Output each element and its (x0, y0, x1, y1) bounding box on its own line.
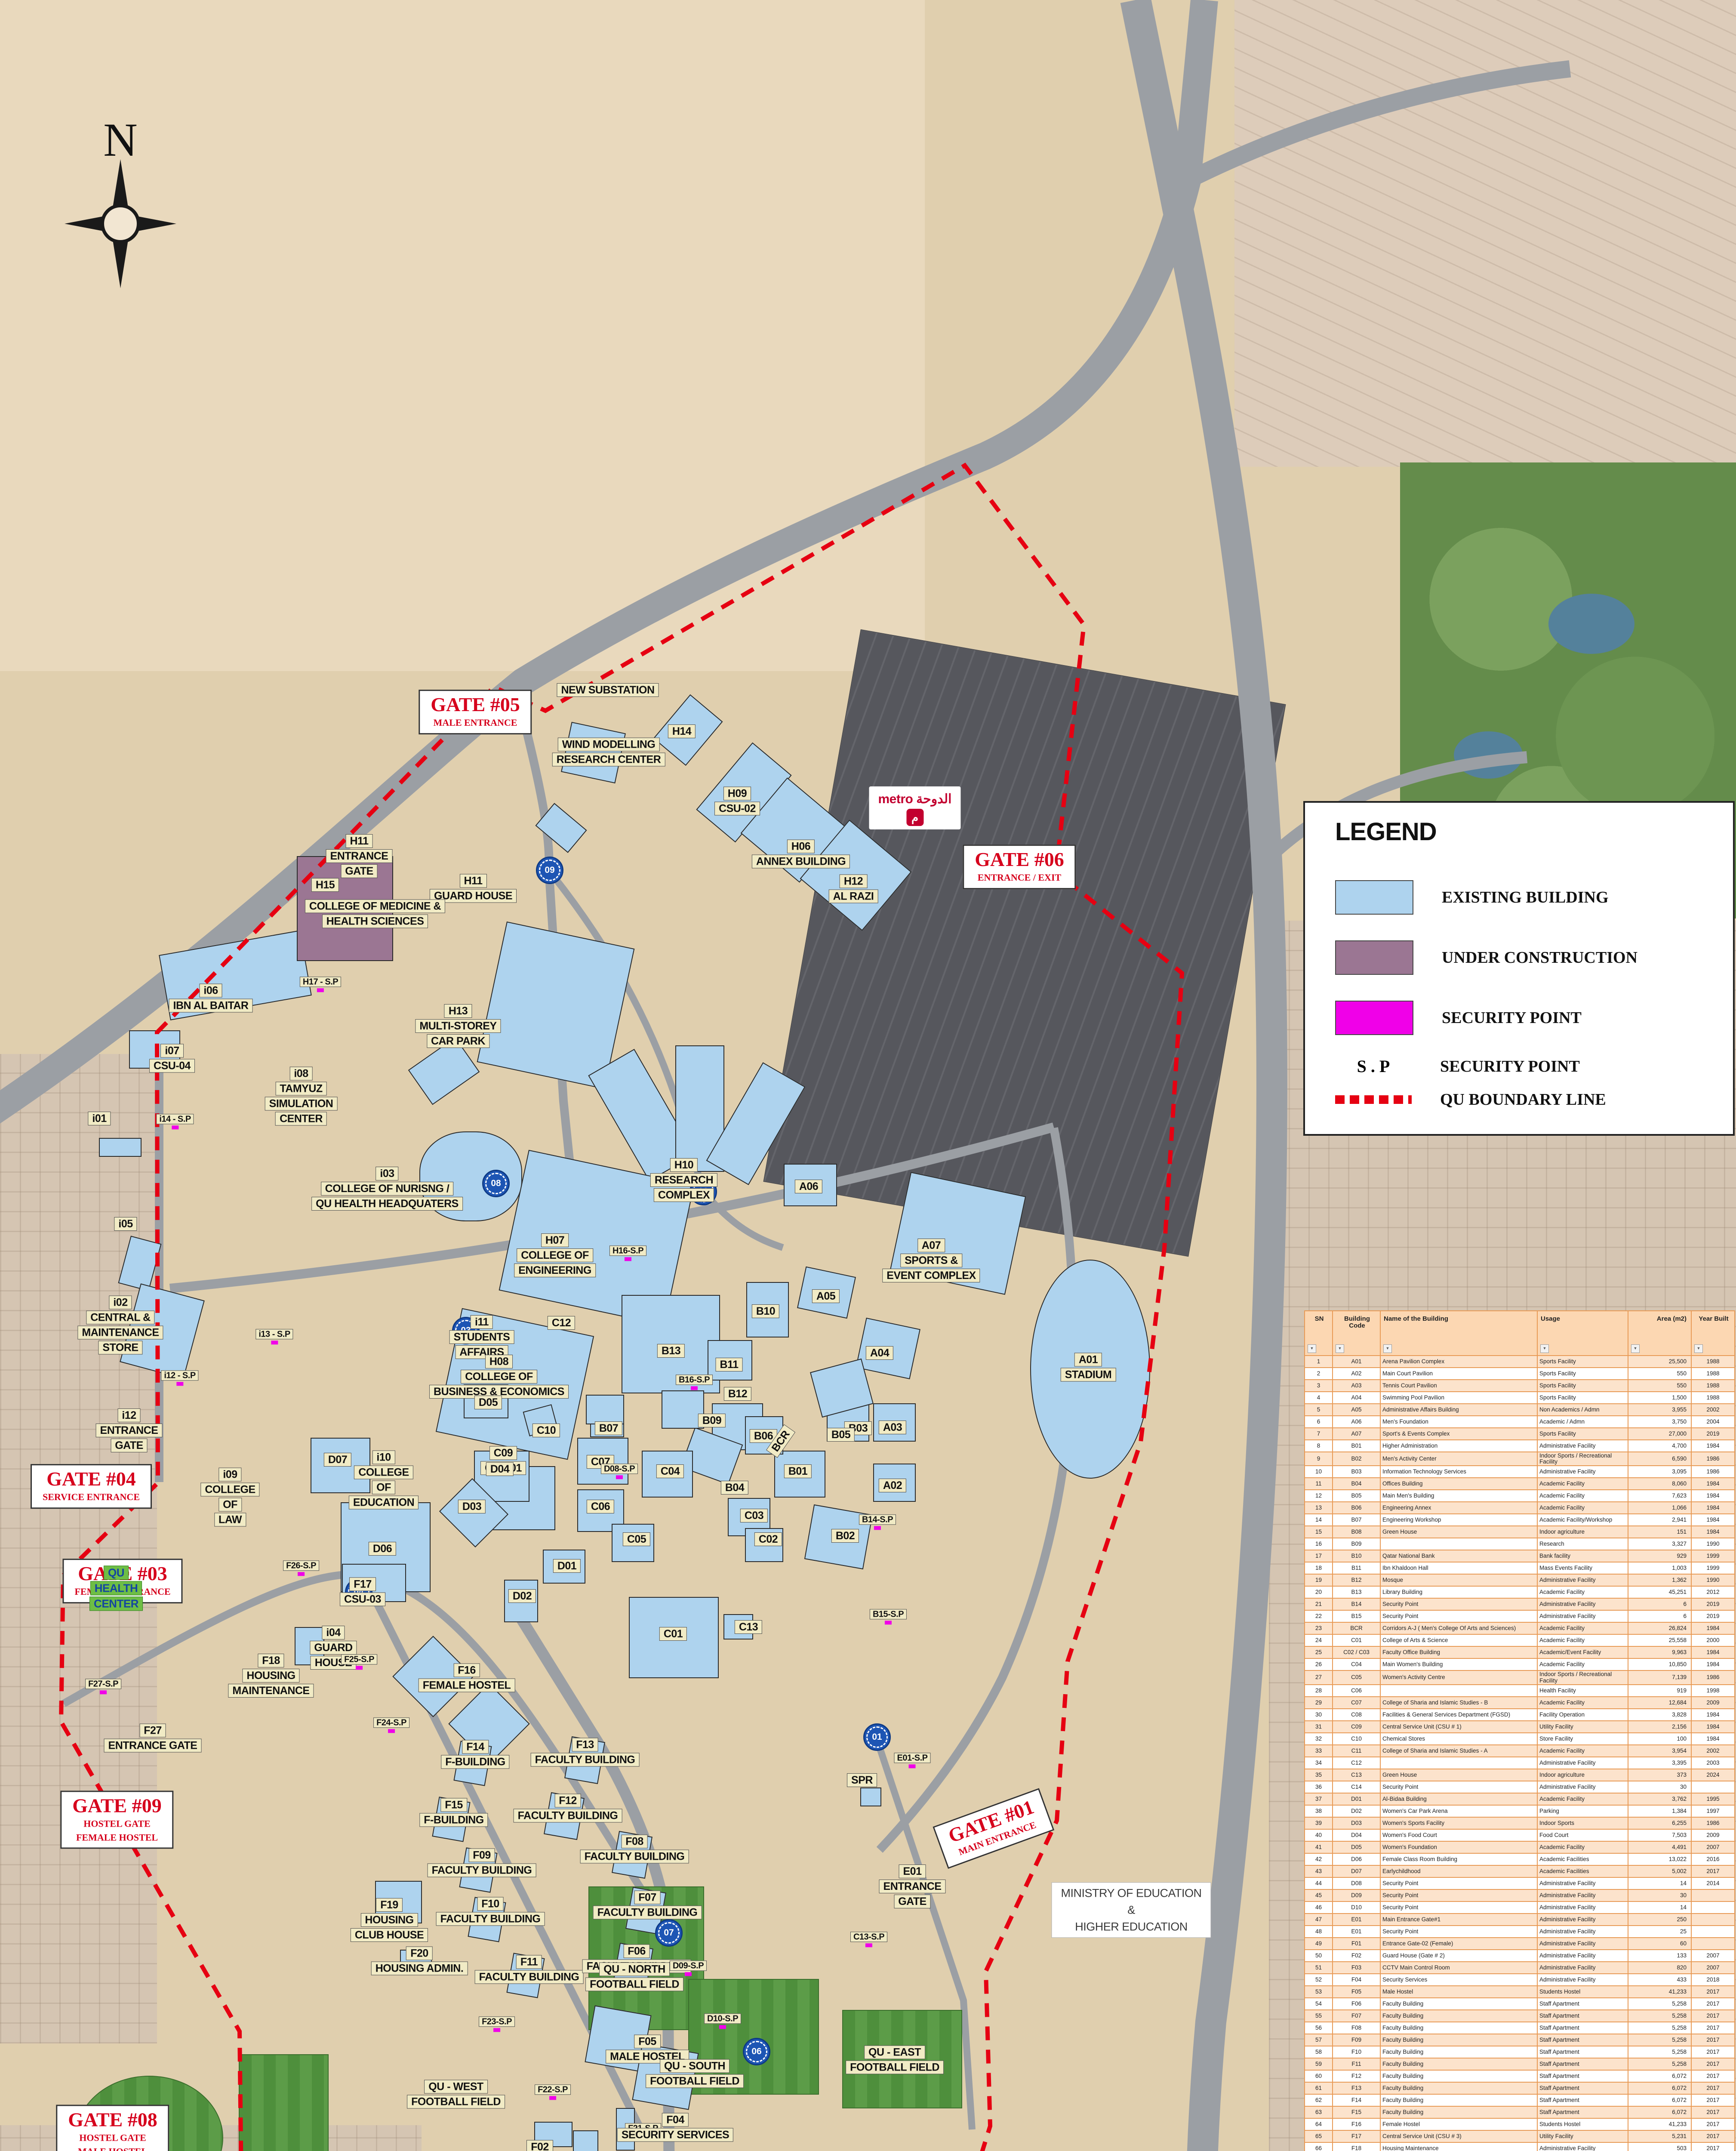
roundabout-07-icon: 07 (655, 1919, 683, 1947)
map-label-a06: A06 (795, 1178, 822, 1195)
map-label-b05: B05 (827, 1427, 855, 1443)
table-row: 61F13Faculty BuildingStaff Apartment6,07… (1305, 2082, 1735, 2094)
map-label-gate-05: GATE #05MALE ENTRANCE (419, 690, 532, 734)
table-row: 24C01College of Arts & ScienceAcademic F… (1305, 1634, 1735, 1646)
filter-code-button[interactable]: ▼ (1336, 1344, 1344, 1353)
map-label-d07: D07 (324, 1451, 351, 1468)
map-label-b02: B02 (831, 1528, 859, 1544)
table-row: 42D06Female Class Room BuildingAcademic … (1305, 1853, 1735, 1865)
map-label-a05: A05 (812, 1288, 840, 1304)
map-label-d08-sp: D08-S.P (601, 1462, 638, 1480)
map-label-f23-sp: F23-S.P (479, 2015, 515, 2033)
map-label-d06: D06 (369, 1541, 396, 1557)
header-building-code: Building Code▼ (1333, 1311, 1380, 1356)
filter-year-button[interactable]: ▼ (1694, 1344, 1703, 1353)
table-row: 10B03Information Technology ServicesAdmi… (1305, 1466, 1735, 1478)
boundary-line-swatch (1335, 1095, 1412, 1104)
map-label-c04: C04 (656, 1463, 684, 1479)
existing-building-swatch (1335, 880, 1413, 915)
table-row: 13B06Engineering AnnexAcademic Facility1… (1305, 1502, 1735, 1514)
building-table: SN▼ Building Code▼ Name of the Building▼… (1304, 1310, 1727, 2151)
map-label-b13: B13 (657, 1343, 685, 1359)
map-label-c06: C06 (587, 1498, 614, 1515)
table-row: 3A03Tennis Court PavilionSports Facility… (1305, 1380, 1735, 1392)
map-label-i05: i05 (114, 1216, 137, 1232)
map-label-i12-sp: i12 - S.P (161, 1369, 198, 1387)
legend-item-existing: EXISTING BUILDING (1335, 880, 1609, 915)
table-row: 52F04Security ServicesAdministrative Fac… (1305, 1974, 1735, 1986)
map-label-d03: D03 (458, 1498, 486, 1515)
map-label-a01-stadium: A01STADIUM (1061, 1352, 1116, 1383)
map-label-c12: C12 (548, 1315, 575, 1331)
table-row: 66F18Housing MaintenanceAdministrative F… (1305, 2142, 1735, 2151)
map-label-i10-education: i10COLLEGEOFEDUCATION (349, 1449, 419, 1511)
table-row: 46D10Security PointAdministrative Facili… (1305, 1901, 1735, 1914)
map-label-f10: F10FACULTY BUILDING (436, 1896, 545, 1927)
table-row: 26C04Main Women's BuildingAcademic Facil… (1305, 1658, 1735, 1670)
map-label-h06-annex: H06ANNEX BUILDING (752, 838, 850, 870)
table-row: 43D07EarlychildhoodAcademic Facilities5,… (1305, 1865, 1735, 1877)
map-label-f14: F14F-BUILDING (441, 1739, 509, 1770)
table-row: 62F14Faculty BuildingStaff Apartment6,07… (1305, 2094, 1735, 2106)
map-label-e01-sp: E01-S.P (894, 1751, 931, 1769)
table-row: 12B05Main Men's BuildingAcademic Facilit… (1305, 1490, 1735, 1502)
roundabout-01-icon: 01 (863, 1723, 891, 1751)
map-label-h15: H15 (311, 877, 339, 893)
table-row: 16B09Research3,3271990 (1305, 1538, 1735, 1550)
map-label-b01: B01 (784, 1463, 812, 1479)
legend-item-sp: S . P SECURITY POINT (1335, 1050, 1580, 1083)
map-label-f22-sp: F22-S.P (535, 2083, 571, 2101)
table-row: 31C09Central Service Unit (CSU # 1)Utili… (1305, 1721, 1735, 1733)
map-label-a04: A04 (866, 1345, 893, 1361)
table-row: 65F17Central Service Unit (CSU # 3)Utili… (1305, 2130, 1735, 2142)
table-row: 11B04Offices BuildingAcademic Facility8,… (1305, 1478, 1735, 1490)
map-label-f02-guard: F02GUARD HOUSE (496, 2139, 583, 2151)
map-label-h08-business: H08COLLEGE OFBUSINESS & ECONOMICS (429, 1353, 569, 1400)
security-point-swatch (1335, 1001, 1413, 1035)
header-year: Year Built▼ (1691, 1311, 1735, 1356)
map-label-f12: F12FACULTY BUILDING (514, 1793, 622, 1824)
map-label-i01: i01 (88, 1110, 111, 1127)
campus-map: N GATE #05MALE ENTRANCEGATE #06ENTRANCE … (0, 0, 1736, 2151)
table-row: 29C07College of Sharia and Islamic Studi… (1305, 1697, 1735, 1709)
header-usage: Usage▼ (1537, 1311, 1628, 1356)
legend-item-security-point: SECURITY POINT (1335, 1001, 1582, 1035)
table-row: 33C11College of Sharia and Islamic Studi… (1305, 1745, 1735, 1757)
map-label-a03: A03 (879, 1419, 906, 1436)
roundabout-08-icon: 08 (482, 1170, 510, 1197)
map-label-f20: F20HOUSING ADMIN. (371, 1945, 468, 1977)
map-label-f07: F07FACULTY BUILDING (593, 1889, 702, 1921)
table-row: 6A06Men's FoundationAcademic / Admn3,750… (1305, 1416, 1735, 1428)
table-row: 45D09Security PointAdministrative Facili… (1305, 1889, 1735, 1901)
compass-north-letter: N (65, 116, 176, 163)
under-construction-swatch (1335, 940, 1413, 975)
table-row: 21B14Security PointAdministrative Facili… (1305, 1598, 1735, 1610)
map-label-f08: F08FACULTY BUILDING (580, 1834, 689, 1865)
map-label-i02-store: i02CENTRAL &MAINTENANCESTORE (77, 1294, 163, 1356)
map-label-c10: C10 (532, 1422, 560, 1439)
map-label-h13-carpark: H13MULTI-STOREYCAR PARK (415, 1003, 501, 1049)
map-label-f27-sp: F27-S.P (85, 1677, 121, 1695)
map-label-i06-ibn-al-baitar: i06IBN AL BAITAR (169, 983, 253, 1014)
table-row: 59F11Faculty BuildingStaff Apartment5,25… (1305, 2058, 1735, 2070)
map-label-b14-sp: B14-S.P (859, 1513, 896, 1531)
map-label-new-substation: NEW SUBSTATION (557, 682, 659, 698)
legend-item-boundary: QU BOUNDARY LINE (1335, 1090, 1606, 1109)
map-label-b09: B09 (698, 1412, 726, 1429)
map-label-b15-sp: B15-S.P (870, 1608, 907, 1625)
table-row: 14B07Engineering WorkshopAcademic Facili… (1305, 1514, 1735, 1526)
map-label-h10-research: H10RESEARCHCOMPLEX (650, 1157, 717, 1203)
roundabout-06-icon: 06 (743, 2038, 770, 2065)
table-row: 58F10Faculty BuildingStaff Apartment5,25… (1305, 2046, 1735, 2058)
compass-rose: N (65, 116, 176, 290)
map-label-wind-modelling: WIND MODELLINGRESEARCH CENTER (552, 737, 665, 768)
table-row: 39D03Women's Sports FacilityIndoor Sport… (1305, 1817, 1735, 1829)
map-label-d01: D01 (553, 1558, 581, 1574)
table-row: 57F09Faculty BuildingStaff Apartment5,25… (1305, 2034, 1735, 2046)
map-label-c01: C01 (659, 1626, 687, 1642)
compass-star-icon (65, 159, 176, 288)
map-label-c03: C03 (740, 1507, 768, 1524)
table-row: 60F12Faculty BuildingStaff Apartment6,07… (1305, 2070, 1735, 2082)
map-label-qu-east-field: QU - EASTFOOTBALL FIELD (846, 2044, 944, 2076)
map-label-f27-entrance: F27ENTRANCE GATE (104, 1723, 202, 1754)
table-row: 4A04Swimming Pool PavilionSports Facilit… (1305, 1392, 1735, 1404)
map-label-qu-west-field: QU - WESTFOOTBALL FIELD (407, 2079, 505, 2110)
map-label-i09-law: i09COLLEGEOFLAW (200, 1467, 259, 1528)
table-row: 2A02Main Court PavilionSports Facility55… (1305, 1368, 1735, 1380)
map-label-h11-entrance-gate: H11ENTRANCEGATE (326, 833, 393, 879)
table-row: 5A05Administrative Affairs BuildingNon A… (1305, 1404, 1735, 1416)
table-row: 22B15Security PointAdministrative Facili… (1305, 1610, 1735, 1622)
table-row: 50F02Guard House (Gate # 2)Administrativ… (1305, 1950, 1735, 1962)
map-label-gate-06: GATE #06ENTRANCE / EXIT (963, 844, 1076, 889)
table-row: 41D05Women's FoundationAcademic Facility… (1305, 1841, 1735, 1853)
map-label-gate-08: GATE #08HOSTEL GATEMALE HOSTEL (56, 2105, 169, 2151)
map-label-h09-csu02: H09CSU-02 (714, 786, 760, 817)
table-row: 9B02Men's Activity CenterIndoor Sports /… (1305, 1452, 1735, 1466)
table-row: 36C14Security PointAdministrative Facili… (1305, 1781, 1735, 1793)
table-row: 54F06Faculty BuildingStaff Apartment5,25… (1305, 1998, 1735, 2010)
map-label-c13-sp: C13-S.P (850, 1930, 887, 1948)
map-label-qu-south-field: QU - SOUTHFOOTBALL FIELD (646, 2058, 744, 2089)
table-row: 7A07Sport's & Events ComplexSports Facil… (1305, 1428, 1735, 1440)
table-row: 20B13Library BuildingAcademic Facility45… (1305, 1586, 1735, 1598)
map-label-f09: F09FACULTY BUILDING (428, 1847, 536, 1879)
map-label-d02: D02 (508, 1588, 536, 1604)
map-label-c13: C13 (735, 1619, 762, 1635)
map-label-i14-sp: i14 - S.P (156, 1112, 194, 1130)
map-label-spr: SPR (847, 1772, 877, 1788)
map-label-b10: B10 (752, 1303, 779, 1319)
map-label-e01-entrance: E01ENTRANCEGATE (879, 1863, 946, 1910)
legend-item-under-construction: UNDER CONSTRUCTION (1335, 940, 1638, 975)
map-label-i08-tamyuz: i08TAMYUZSIMULATIONCENTER (265, 1066, 338, 1127)
filter-area-button[interactable]: ▼ (1631, 1344, 1640, 1353)
map-label-i07-csu04: i07CSU-04 (149, 1043, 195, 1074)
map-label-a07-sports: A07SPORTS &EVENT COMPLEX (882, 1237, 980, 1284)
map-label-b12: B12 (724, 1386, 751, 1402)
map-label-a02: A02 (879, 1477, 906, 1494)
map-label-i13-sp: i13 - S.P (255, 1328, 293, 1345)
map-label-f17-csu03: F17CSU-03 (340, 1576, 385, 1608)
map-label-metro-station: metro الدوحة (869, 786, 960, 829)
table-row: 30C08Facilities & General Services Depar… (1305, 1709, 1735, 1721)
map-label-f15: F15F-BUILDING (419, 1797, 488, 1828)
map-label-h12-alrazi: H12AL RAZI (829, 873, 878, 905)
table-row: 37D01Al-Bidaa BuildingAcademic Facility3… (1305, 1793, 1735, 1805)
map-label-h14: H14 (668, 723, 696, 740)
table-header-row: SN▼ Building Code▼ Name of the Building▼… (1305, 1311, 1735, 1356)
map-label-b11: B11 (716, 1356, 743, 1373)
map-label-f11: F11FACULTY BUILDING (475, 1954, 584, 1985)
table-row: 56F08Faculty BuildingStaff Apartment5,25… (1305, 2022, 1735, 2034)
map-label-gate-09: GATE #09HOSTEL GATEFEMALE HOSTEL (60, 1790, 173, 1849)
filter-sn-button[interactable]: ▼ (1308, 1344, 1316, 1353)
map-label-h17-sp: H17 - S.P (300, 975, 341, 993)
legend-panel: LEGEND EXISTING BUILDING UNDER CONSTRUCT… (1303, 801, 1735, 1136)
table-row: 15B08Green HouseIndoor agriculture151198… (1305, 1526, 1735, 1538)
table-row: 1A01Arena Pavilion ComplexSports Facilit… (1305, 1356, 1735, 1368)
table-row: 32C10Chemical StoresStore Facility100198… (1305, 1733, 1735, 1745)
table-row: 44D08Security PointAdministrative Facili… (1305, 1877, 1735, 1889)
map-label-f13: F13FACULTY BUILDING (531, 1737, 640, 1768)
table-row: 38D02Women's Car Park ArenaParking1,3841… (1305, 1805, 1735, 1817)
table-row: 18B11Ibn Khaldoon HallMass Events Facili… (1305, 1562, 1735, 1574)
table-row: 34C12Administrative Facility3,3952003 (1305, 1757, 1735, 1769)
map-label-i03-nursing: i03COLLEGE OF NURISNG /QU HEALTH HEADQUA… (311, 1165, 463, 1212)
map-label-d10-sp: D10-S.P (704, 2012, 741, 2030)
map-label-c05: C05 (623, 1531, 650, 1547)
map-label-h16-sp: H16-S.P (609, 1244, 646, 1262)
table-row: 64F16Female HostelStudents Hostel41,2332… (1305, 2118, 1735, 2130)
map-label-ministry-education: MINISTRY OF EDUCATION&HIGHER EDUCATION (1051, 1882, 1211, 1938)
header-name: Name of the Building▼ (1380, 1311, 1537, 1356)
map-label-college-medicine: COLLEGE OF MEDICINE &HEALTH SCIENCES (305, 898, 445, 930)
table-row: 17B10Qatar National BankBank facility929… (1305, 1550, 1735, 1562)
table-row: 63F15Faculty BuildingStaff Apartment6,07… (1305, 2106, 1735, 2118)
table-row: 47E01Main Entrance Gate#1Administrative … (1305, 1914, 1735, 1926)
roundabout-09-icon: 09 (536, 857, 563, 884)
map-label-f19: F19HOUSINGCLUB HOUSE (351, 1897, 428, 1943)
filter-usage-button[interactable]: ▼ (1540, 1344, 1549, 1353)
table-row: 55F07Faculty BuildingStaff Apartment5,25… (1305, 2010, 1735, 2022)
table-row: 25C02 / C03Faculty Office BuildingAcadem… (1305, 1646, 1735, 1658)
table-row: 23BCRCorridors A-J ( Men's College Of Ar… (1305, 1622, 1735, 1634)
header-area: Area (m2)▼ (1628, 1311, 1691, 1356)
filter-name-button[interactable]: ▼ (1383, 1344, 1392, 1353)
map-label-f26-sp: F26-S.P (283, 1559, 319, 1577)
table-row: 27C05Women's Activity CentreIndoor Sport… (1305, 1670, 1735, 1684)
map-label-d09-sp: D09-S.P (670, 1959, 707, 1977)
table-row: 35C13Green HouseIndoor agriculture373202… (1305, 1769, 1735, 1781)
map-label-f24-sp: F24-S.P (373, 1716, 409, 1734)
map-label-f25-sp: F25-S.P (341, 1653, 377, 1670)
sp-symbol: S . P (1335, 1050, 1412, 1083)
table-row: 48E01Security PointAdministrative Facili… (1305, 1926, 1735, 1938)
legend-title: LEGEND (1335, 817, 1733, 846)
table-row: 53F05Male HostelStudents Hostel41,233201… (1305, 1986, 1735, 1998)
map-label-b07: B07 (595, 1420, 622, 1436)
map-label-b16-sp: B16-S.P (676, 1373, 713, 1391)
map-label-f16-female-hostel: F16FEMALE HOSTEL (419, 1662, 515, 1694)
map-label-qu-north-field: QU - NORTHFOOTBALL FIELD (585, 1961, 683, 1993)
map-label-h07-engineering: H07COLLEGE OFENGINEERING (514, 1232, 596, 1279)
table-row: 28C06Health Facility9191998 (1305, 1685, 1735, 1697)
map-label-f18-housing-maint: F18HOUSINGMAINTENANCE (228, 1652, 314, 1699)
map-label-c02: C02 (754, 1531, 782, 1547)
table-row: 51F03CCTV Main Control RoomAdministrativ… (1305, 1962, 1735, 1974)
table-row: 19B12MosqueAdministrative Facility1,3621… (1305, 1574, 1735, 1586)
map-label-gate-04: GATE #04SERVICE ENTRANCE (31, 1464, 152, 1509)
table-row: 49F01Entrance Gate-02 (Female)Administra… (1305, 1938, 1735, 1950)
map-label-b04: B04 (721, 1479, 748, 1496)
map-label-d04: D04 (486, 1461, 514, 1477)
map-label-d05: D05 (474, 1394, 502, 1411)
map-label-f04-security: F04SECURITY SERVICES (617, 2112, 733, 2143)
header-sn: SN▼ (1305, 1311, 1333, 1356)
map-label-qu-health-center: QUHEALTHCENTER (89, 1564, 143, 1612)
table-row: 40D04Women's Food CourtFood Court7,50320… (1305, 1829, 1735, 1841)
table-row: 8B01Higher AdministrationAdministrative … (1305, 1440, 1735, 1452)
map-label-i12-entrance: i12ENTRANCEGATE (96, 1407, 163, 1454)
